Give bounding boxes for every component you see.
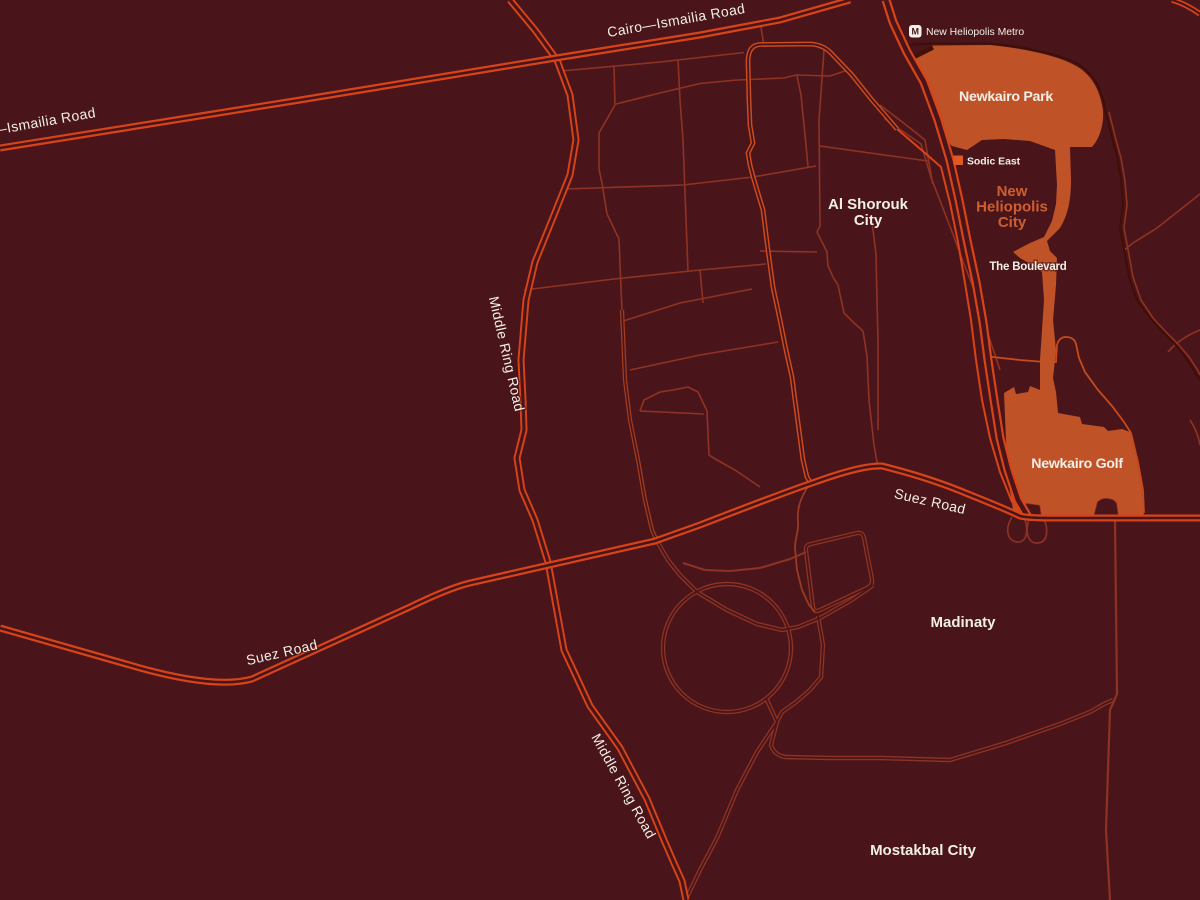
- svg-text:Mostakbal City: Mostakbal City: [870, 842, 977, 859]
- svg-text:New Heliopolis Metro: New Heliopolis Metro: [926, 27, 1024, 38]
- svg-text:City: City: [854, 212, 883, 229]
- svg-text:The Boulevard: The Boulevard: [989, 261, 1066, 273]
- svg-text:Madinaty: Madinaty: [930, 614, 996, 631]
- svg-text:Sodic East: Sodic East: [967, 157, 1021, 168]
- svg-text:New: New: [997, 183, 1028, 200]
- svg-text:Heliopolis: Heliopolis: [976, 199, 1048, 216]
- svg-text:Newkairo Park: Newkairo Park: [959, 89, 1053, 105]
- svg-text:Newkairo Golf: Newkairo Golf: [1031, 456, 1123, 472]
- svg-text:Al Shorouk: Al Shorouk: [828, 196, 909, 213]
- svg-text:M: M: [911, 27, 919, 37]
- svg-text:City: City: [998, 214, 1027, 231]
